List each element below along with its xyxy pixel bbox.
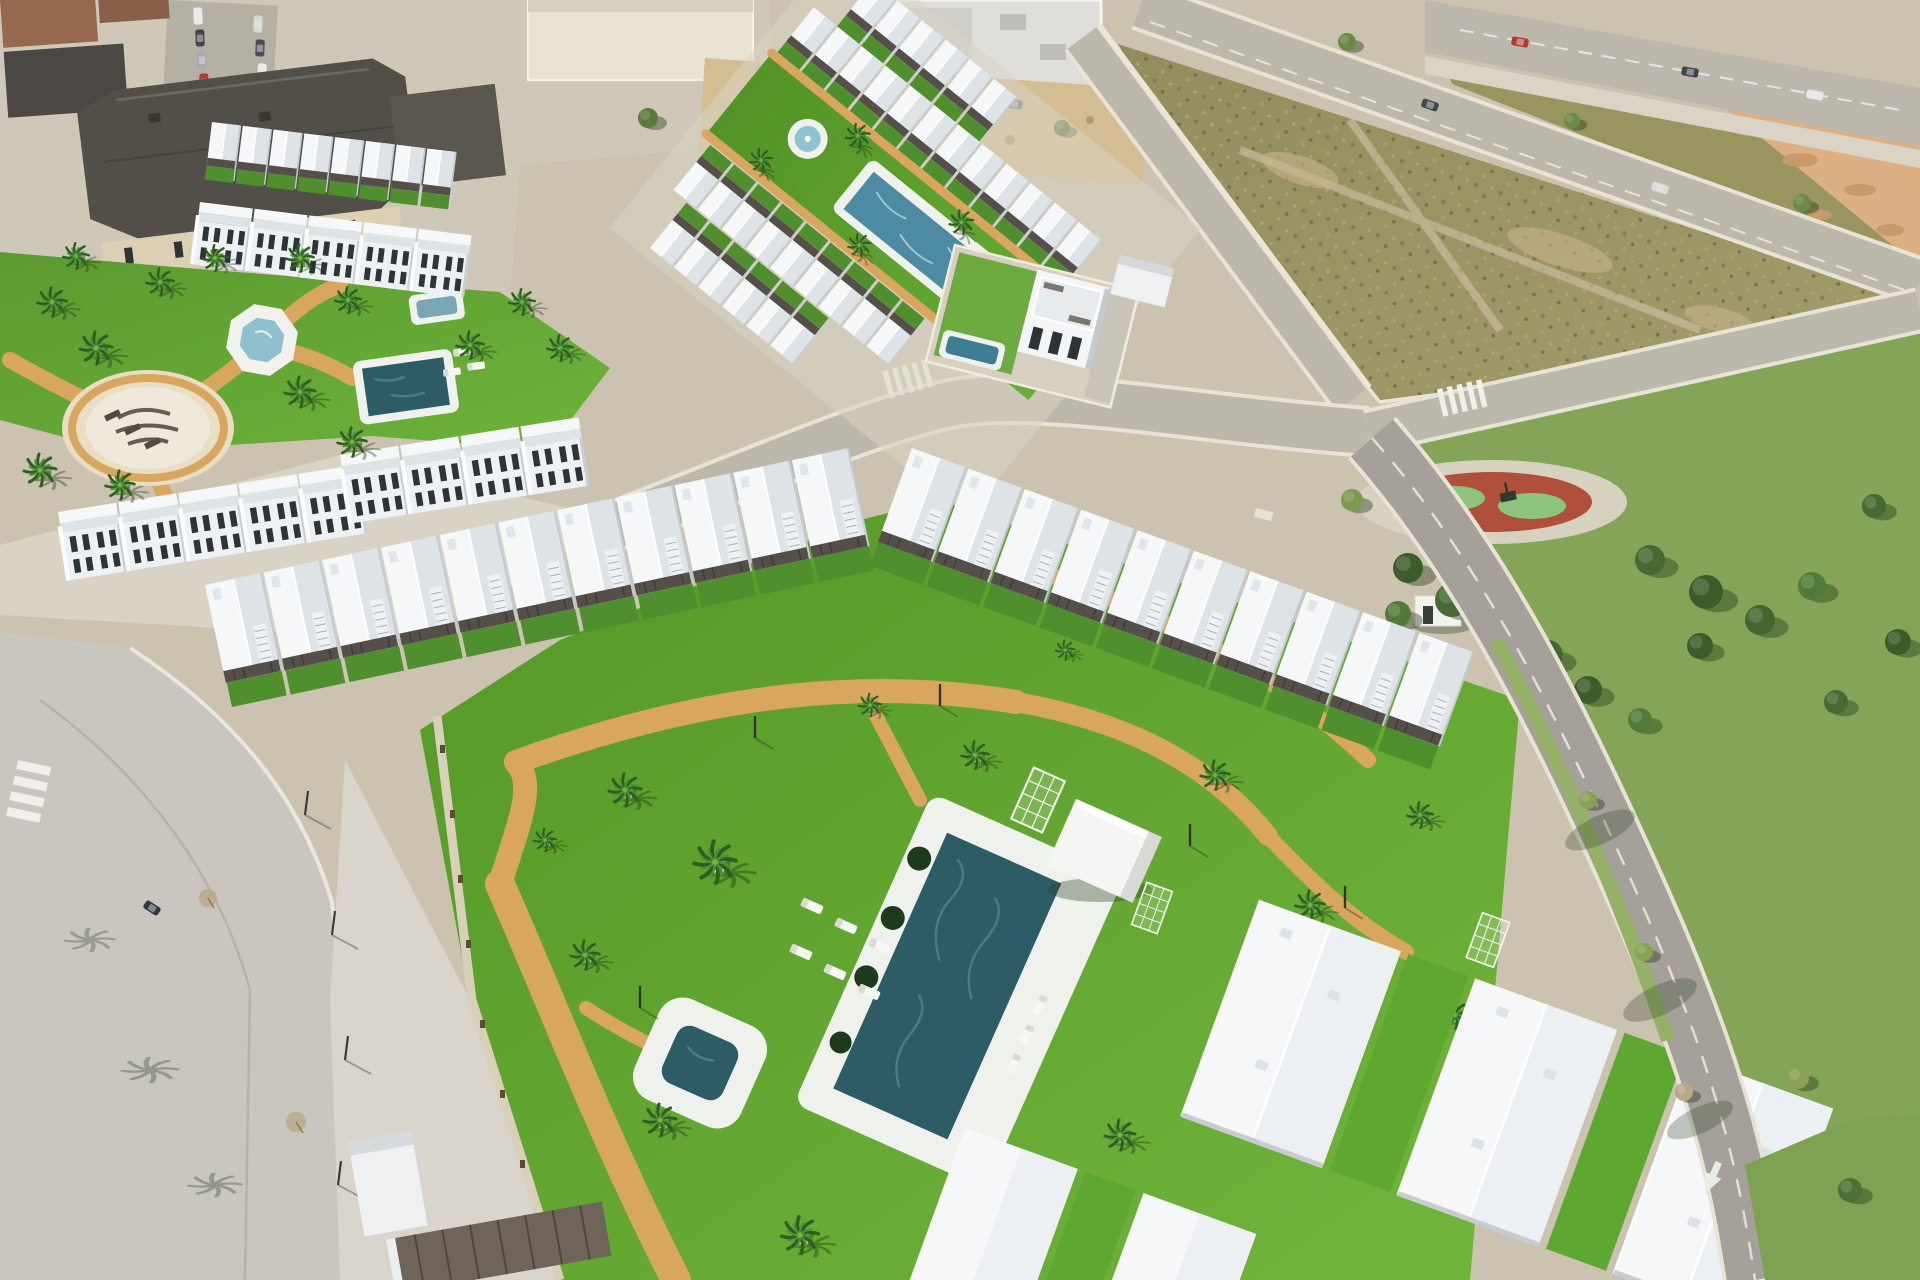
parked-car	[253, 15, 263, 32]
parked-car	[193, 7, 203, 24]
old-town-terrace-roofline	[528, 0, 753, 12]
nw-plaza	[62, 370, 234, 486]
aerial-render	[0, 0, 1920, 1280]
parked-car	[255, 39, 265, 56]
aerial-render-canvas	[0, 0, 1920, 1280]
parked-car	[197, 51, 207, 68]
parked-car	[195, 29, 205, 46]
